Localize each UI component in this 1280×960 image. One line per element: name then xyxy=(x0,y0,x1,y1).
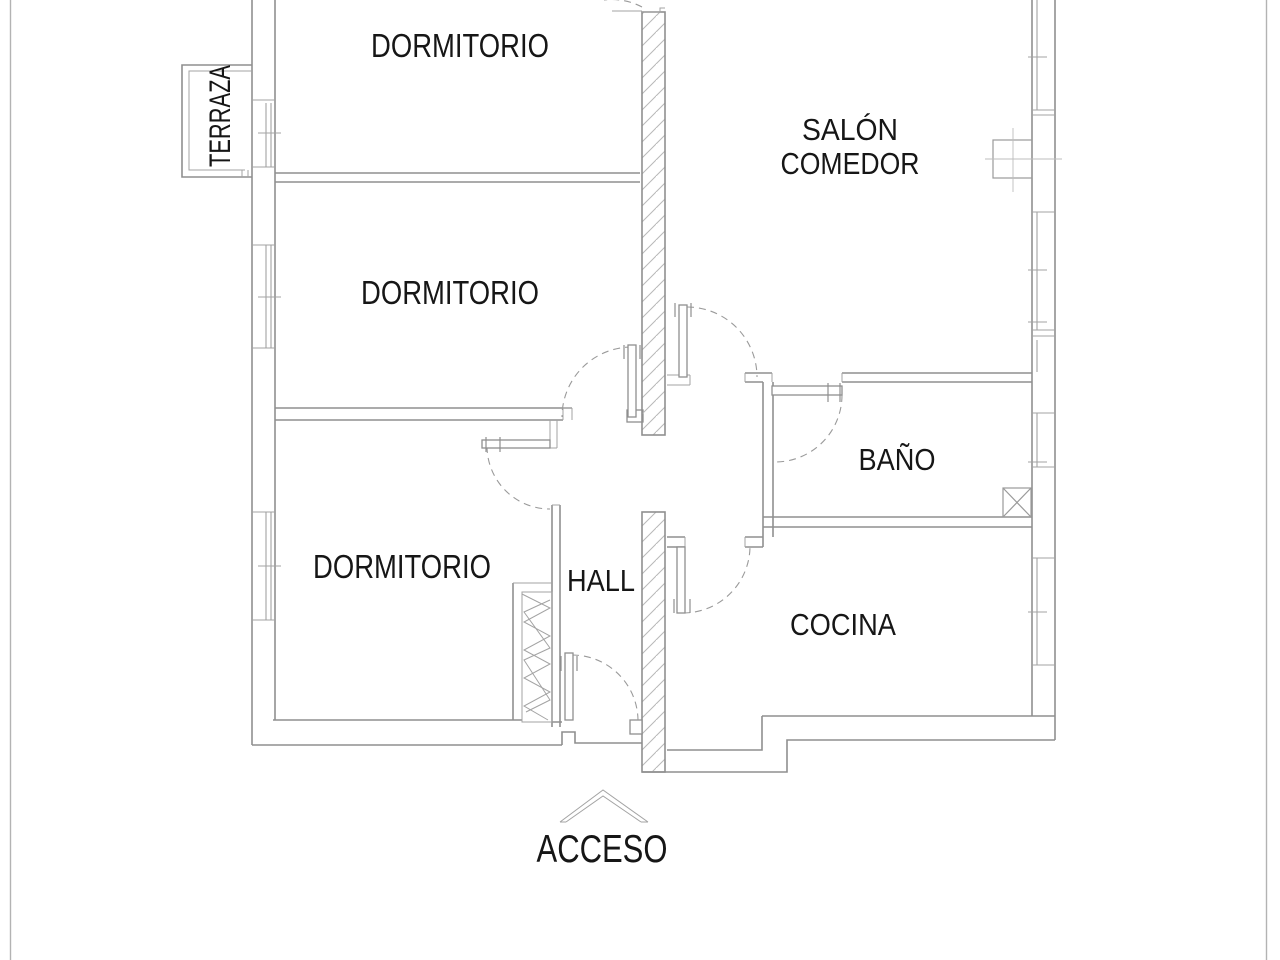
window-dormitorio-middle xyxy=(258,245,281,348)
label-salon-line1: SALÓN xyxy=(802,112,898,147)
label-dormitorio-top: DORMITORIO xyxy=(371,27,549,64)
wall-hall-west xyxy=(552,505,560,727)
label-salon-line2: COMEDOR xyxy=(781,146,920,181)
door-salon xyxy=(667,303,757,385)
door-dormitorio-bottom xyxy=(482,420,557,509)
label-terraza: TERRAZA xyxy=(204,65,237,167)
shaft-x-box xyxy=(1003,488,1031,517)
label-hall: HALL xyxy=(567,563,635,598)
floor-plan-svg: DORMITORIO SALÓN COMEDOR DORMITORIO BAÑO… xyxy=(0,0,1280,960)
column-grid-marker xyxy=(985,128,1062,192)
window-dormitorio-bottom xyxy=(258,512,281,620)
wall-dorm1-dorm2 xyxy=(275,173,640,182)
label-dormitorio-middle: DORMITORIO xyxy=(361,274,539,311)
label-cocina: COCINA xyxy=(790,607,896,642)
closet-wardrobe xyxy=(513,583,552,722)
page-border-lines xyxy=(11,0,1267,960)
label-bano: BAÑO xyxy=(859,442,936,477)
floor-plan-page: DORMITORIO SALÓN COMEDOR DORMITORIO BAÑO… xyxy=(0,0,1280,960)
door-bano xyxy=(772,383,842,462)
door-dormitorio-middle xyxy=(562,345,643,422)
label-acceso: ACCESO xyxy=(537,828,668,871)
door-entrance xyxy=(561,653,642,734)
wall-dorm2-dorm3 xyxy=(275,408,572,420)
window-terraza-door xyxy=(258,103,281,167)
label-dormitorio-bottom: DORMITORIO xyxy=(313,548,491,585)
acceso-arrow xyxy=(560,790,648,822)
door-cocina xyxy=(667,537,763,613)
